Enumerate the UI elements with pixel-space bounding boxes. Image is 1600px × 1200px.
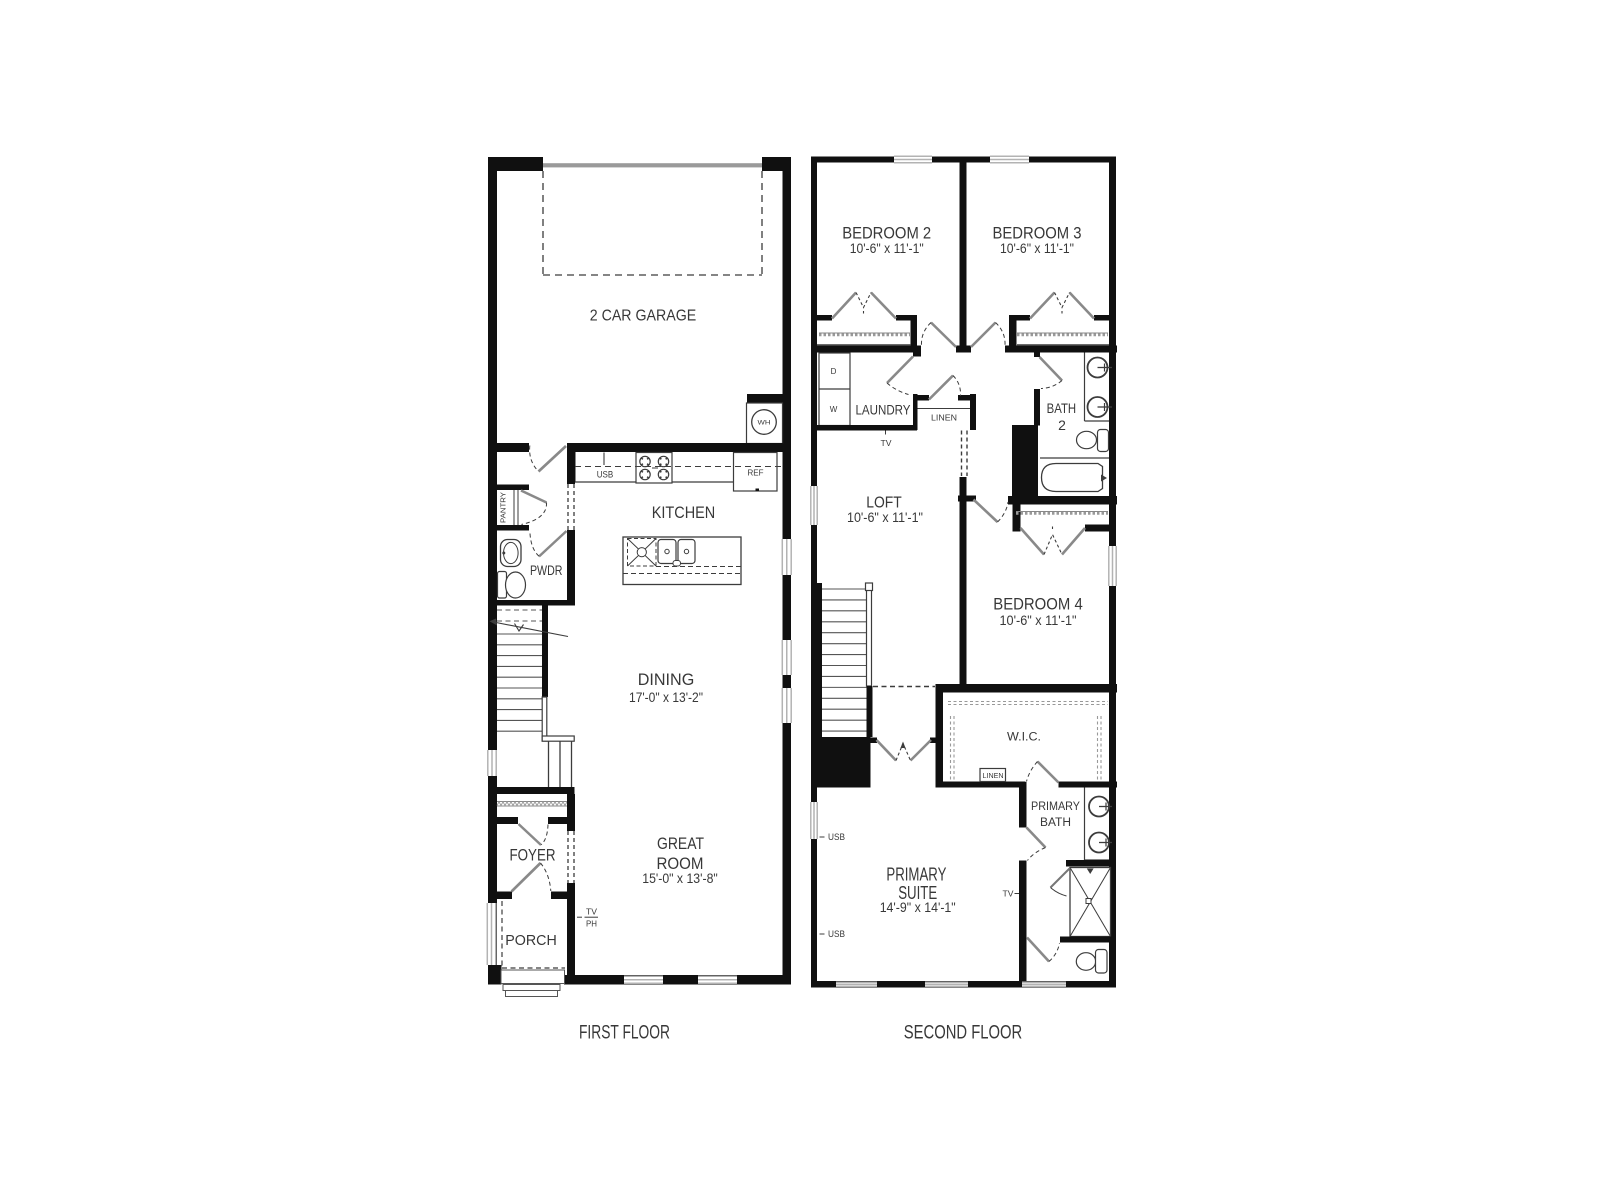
svg-text:PH: PH [586,919,597,929]
svg-text:LOFT: LOFT [866,495,902,512]
svg-text:10'-6" x 11'-1": 10'-6" x 11'-1" [847,510,923,525]
svg-text:PWDR: PWDR [530,563,563,578]
svg-text:TV: TV [881,438,892,448]
svg-text:BATH: BATH [1040,817,1071,829]
svg-text:FIRST FLOOR: FIRST FLOOR [579,1023,670,1044]
svg-text:PANTRY: PANTRY [499,492,508,523]
svg-text:17'-0" x 13'-2": 17'-0" x 13'-2" [629,690,703,705]
svg-text:DINING: DINING [638,670,695,689]
svg-text:LINEN: LINEN [931,414,957,423]
svg-text:FOYER: FOYER [510,846,556,865]
svg-text:USB: USB [828,929,845,939]
svg-text:BEDROOM 2: BEDROOM 2 [842,224,931,243]
svg-text:W.I.C.: W.I.C. [1007,732,1041,744]
svg-text:LAUNDRY: LAUNDRY [856,401,912,417]
svg-text:KITCHEN: KITCHEN [652,503,716,522]
svg-text:10'-6" x 11'-1": 10'-6" x 11'-1" [1000,241,1074,256]
svg-text:BATH: BATH [1047,400,1077,416]
svg-text:2: 2 [1058,417,1066,433]
svg-text:USB: USB [828,832,845,842]
svg-text:TV: TV [586,907,597,917]
svg-text:W: W [830,405,838,414]
svg-text:WH: WH [758,420,771,427]
svg-text:ROOM: ROOM [657,854,704,873]
svg-text:14'-9" x 14'-1": 14'-9" x 14'-1" [880,900,956,915]
svg-text:10'-6" x 11'-1": 10'-6" x 11'-1" [850,241,924,256]
svg-text:BEDROOM 3: BEDROOM 3 [993,224,1082,243]
svg-text:BEDROOM 4: BEDROOM 4 [993,595,1083,614]
svg-text:USB: USB [597,470,614,480]
svg-text:GREAT: GREAT [657,834,704,853]
svg-text:D: D [831,367,837,376]
svg-text:2 CAR GARAGE: 2 CAR GARAGE [590,308,697,325]
svg-text:SECOND FLOOR: SECOND FLOOR [904,1023,1023,1044]
svg-text:15'-0" x 13'-8": 15'-0" x 13'-8" [642,871,718,886]
svg-text:TV: TV [1003,889,1014,899]
svg-text:PRIMARY: PRIMARY [886,864,946,884]
svg-text:PRIMARY: PRIMARY [1031,801,1080,813]
svg-text:PORCH: PORCH [505,932,557,949]
svg-text:REF: REF [748,468,764,478]
svg-text:LINEN: LINEN [983,773,1004,780]
svg-text:10'-6" x 11'-1": 10'-6" x 11'-1" [1000,613,1077,628]
